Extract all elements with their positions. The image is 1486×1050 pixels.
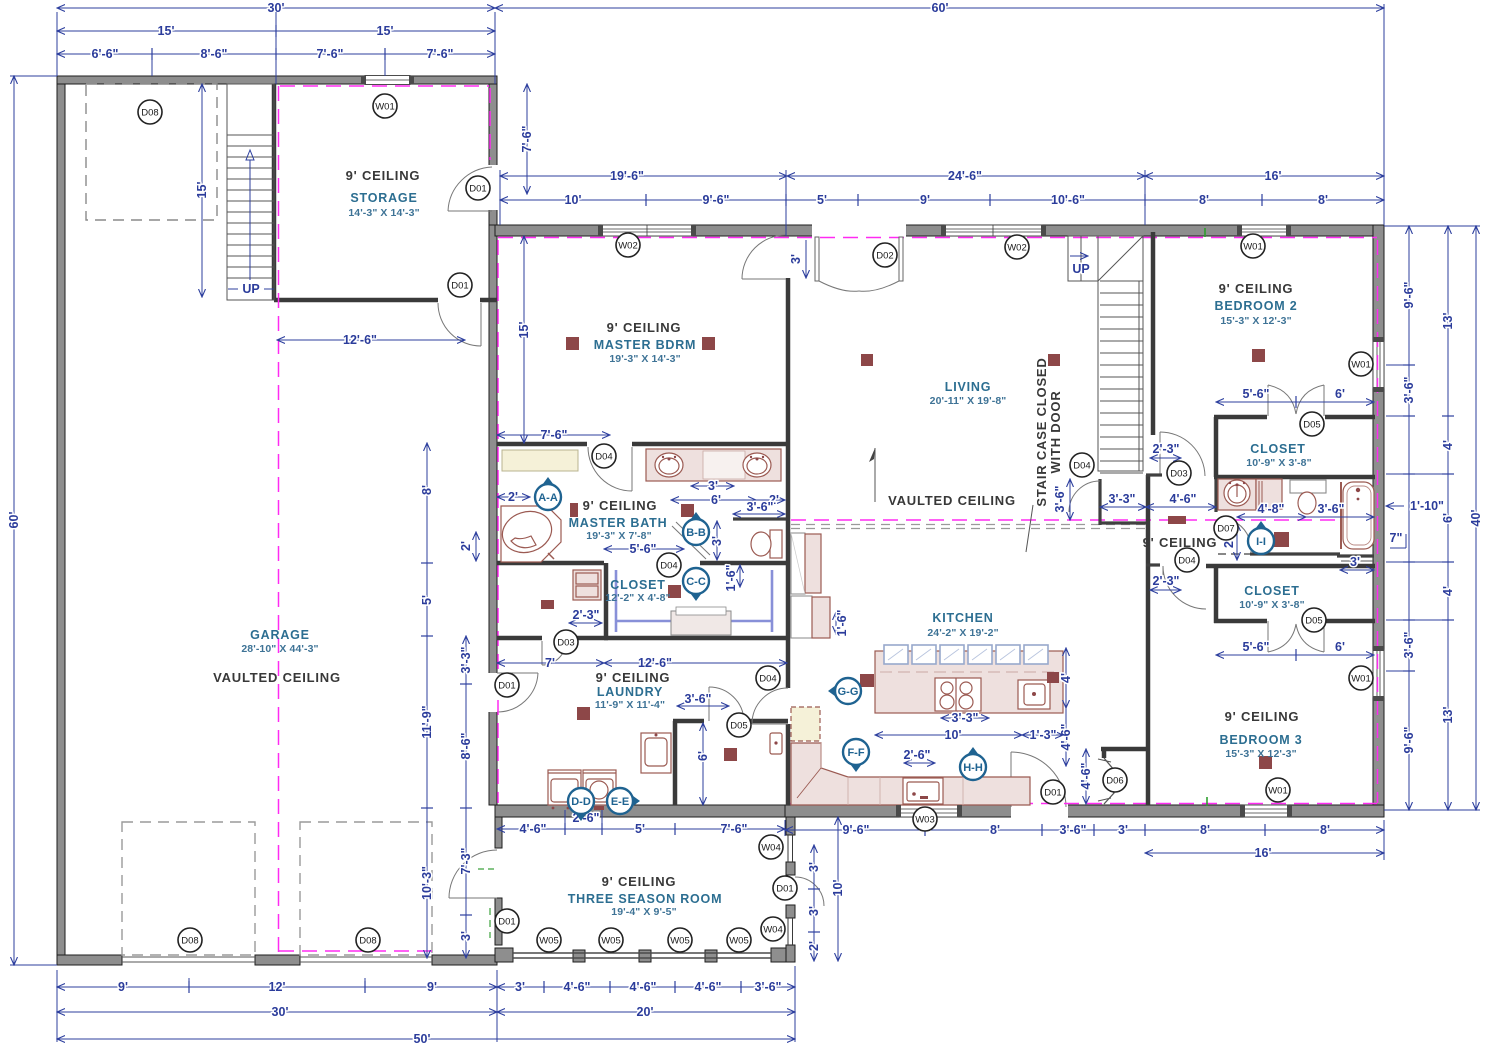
- svg-text:9' CEILING: 9' CEILING: [1219, 281, 1294, 296]
- svg-text:W01: W01: [1268, 786, 1288, 797]
- svg-text:3'-3": 3'-3": [1109, 492, 1136, 506]
- svg-text:D02: D02: [876, 251, 893, 262]
- svg-text:D06: D06: [1106, 776, 1123, 787]
- svg-text:3': 3': [710, 536, 724, 546]
- svg-text:B-B: B-B: [686, 527, 706, 539]
- svg-text:8'-6": 8'-6": [459, 732, 473, 759]
- svg-text:1'-10": 1'-10": [1410, 499, 1444, 513]
- svg-text:14'-3" X 14'-3": 14'-3" X 14'-3": [348, 207, 419, 219]
- svg-text:3': 3': [708, 479, 718, 493]
- svg-text:D01: D01: [498, 917, 515, 928]
- svg-text:9' CEILING: 9' CEILING: [346, 168, 421, 183]
- svg-text:15': 15': [377, 24, 394, 38]
- svg-text:W03: W03: [915, 815, 935, 826]
- svg-text:4': 4': [1441, 440, 1455, 450]
- svg-text:12'-2" X 4'-8": 12'-2" X 4'-8": [605, 592, 670, 604]
- svg-text:15': 15': [195, 182, 209, 199]
- svg-text:19'-3" X 7'-8": 19'-3" X 7'-8": [586, 530, 651, 542]
- svg-text:STAIR CASE CLOSED: STAIR CASE CLOSED: [1034, 357, 1049, 506]
- svg-text:UP: UP: [242, 282, 259, 296]
- svg-text:19'-3" X 14'-3": 19'-3" X 14'-3": [609, 353, 680, 365]
- svg-text:7'-6": 7'-6": [520, 125, 534, 152]
- svg-text:13': 13': [1441, 707, 1455, 724]
- svg-text:W01: W01: [1351, 360, 1371, 371]
- svg-text:9': 9': [427, 980, 437, 994]
- svg-text:W04: W04: [763, 925, 783, 936]
- svg-text:15'-3" X 12'-3": 15'-3" X 12'-3": [1220, 315, 1291, 327]
- svg-text:D-D: D-D: [571, 796, 591, 808]
- svg-text:D01: D01: [498, 681, 515, 692]
- svg-text:3'-6": 3'-6": [1402, 631, 1416, 658]
- svg-text:3': 3': [1118, 823, 1128, 837]
- svg-text:5'-6": 5'-6": [1243, 640, 1270, 654]
- svg-text:7'-3": 7'-3": [459, 847, 473, 874]
- svg-text:D03: D03: [1170, 469, 1187, 480]
- svg-text:UP: UP: [1072, 262, 1089, 276]
- svg-text:W04: W04: [761, 843, 781, 854]
- svg-text:D05: D05: [1305, 616, 1322, 627]
- svg-text:2'-3": 2'-3": [1153, 442, 1180, 456]
- svg-text:CLOSET: CLOSET: [1244, 584, 1300, 598]
- svg-text:19'-6": 19'-6": [610, 169, 644, 183]
- svg-text:1'-6": 1'-6": [724, 564, 738, 591]
- svg-text:VAULTED CEILING: VAULTED CEILING: [888, 493, 1016, 508]
- svg-text:3'-6": 3'-6": [1060, 823, 1087, 837]
- svg-text:15': 15': [517, 322, 531, 339]
- svg-text:9' CEILING: 9' CEILING: [602, 874, 677, 889]
- svg-text:3'-3": 3'-3": [459, 646, 473, 673]
- svg-text:VAULTED CEILING: VAULTED CEILING: [213, 670, 341, 685]
- svg-text:9' CEILING: 9' CEILING: [1143, 535, 1218, 550]
- svg-text:20'-11" X 19'-8": 20'-11" X 19'-8": [930, 395, 1007, 407]
- svg-text:10': 10': [831, 880, 845, 897]
- svg-text:4': 4': [1441, 586, 1455, 596]
- svg-text:3'-3": 3'-3": [952, 711, 979, 725]
- svg-text:10'-9" X 3'-8": 10'-9" X 3'-8": [1239, 599, 1304, 611]
- svg-text:20': 20': [637, 1005, 654, 1019]
- svg-text:8': 8': [1199, 193, 1209, 207]
- svg-text:LIVING: LIVING: [945, 380, 991, 394]
- svg-text:9'-6": 9'-6": [703, 193, 730, 207]
- svg-text:9' CEILING: 9' CEILING: [607, 320, 682, 335]
- svg-text:3': 3': [807, 862, 821, 872]
- svg-text:10': 10': [945, 728, 962, 742]
- svg-text:40': 40': [1469, 510, 1483, 527]
- svg-text:LAUNDRY: LAUNDRY: [597, 685, 663, 699]
- svg-text:A-A: A-A: [538, 492, 558, 504]
- svg-text:15'-3" X 12'-3": 15'-3" X 12'-3": [1225, 748, 1296, 760]
- svg-text:8': 8': [1320, 823, 1330, 837]
- svg-text:2'-6": 2'-6": [904, 748, 931, 762]
- svg-text:7'-6": 7'-6": [721, 822, 748, 836]
- svg-text:4'-6": 4'-6": [630, 980, 657, 994]
- svg-text:24'-2" X 19'-2": 24'-2" X 19'-2": [927, 627, 998, 639]
- svg-text:D04: D04: [1073, 461, 1090, 472]
- svg-text:3': 3': [1350, 555, 1360, 569]
- svg-text:2'-3": 2'-3": [1153, 574, 1180, 588]
- svg-text:1'-3": 1'-3": [1030, 728, 1057, 742]
- svg-text:9': 9': [118, 980, 128, 994]
- svg-text:19'-4" X 9'-5": 19'-4" X 9'-5": [611, 906, 676, 918]
- svg-text:5'-6": 5'-6": [630, 542, 657, 556]
- svg-text:12'-6": 12'-6": [343, 333, 377, 347]
- svg-text:3': 3': [789, 254, 803, 264]
- svg-text:10': 10': [565, 193, 582, 207]
- svg-text:4'-6": 4'-6": [695, 980, 722, 994]
- svg-text:6': 6': [1335, 387, 1345, 401]
- svg-text:7'-6": 7'-6": [317, 47, 344, 61]
- svg-text:C-C: C-C: [686, 576, 706, 588]
- svg-text:3'-6": 3'-6": [1318, 502, 1345, 516]
- svg-text:BEDROOM 3: BEDROOM 3: [1220, 733, 1303, 747]
- svg-text:D05: D05: [1303, 420, 1320, 431]
- svg-text:6': 6': [696, 751, 710, 761]
- svg-text:3'-6": 3'-6": [755, 980, 782, 994]
- svg-text:2': 2': [459, 541, 473, 551]
- svg-text:MASTER BDRM: MASTER BDRM: [594, 338, 697, 352]
- svg-text:7'-6": 7'-6": [427, 47, 454, 61]
- svg-text:5': 5': [817, 193, 827, 207]
- svg-text:STORAGE: STORAGE: [350, 191, 417, 205]
- svg-text:3'-6": 3'-6": [1053, 485, 1067, 512]
- svg-text:2'-3": 2'-3": [573, 608, 600, 622]
- svg-text:15': 15': [158, 24, 175, 38]
- svg-text:I-I: I-I: [1256, 536, 1266, 548]
- svg-text:24'-6": 24'-6": [948, 169, 982, 183]
- svg-text:W05: W05: [601, 936, 621, 947]
- svg-text:D05: D05: [730, 721, 747, 732]
- svg-text:3': 3': [807, 906, 821, 916]
- svg-text:KITCHEN: KITCHEN: [932, 611, 993, 625]
- svg-text:13': 13': [1441, 313, 1455, 330]
- svg-text:6': 6': [711, 493, 721, 507]
- svg-text:5'-6": 5'-6": [1243, 387, 1270, 401]
- svg-text:D04: D04: [660, 561, 677, 572]
- svg-text:50': 50': [414, 1032, 431, 1046]
- svg-text:W05: W05: [729, 936, 749, 947]
- svg-text:W01: W01: [375, 102, 395, 113]
- svg-text:CLOSET: CLOSET: [610, 578, 666, 592]
- svg-text:3': 3': [515, 980, 525, 994]
- svg-text:2': 2': [807, 941, 821, 951]
- svg-text:4'-6": 4'-6": [1059, 723, 1073, 750]
- svg-text:4': 4': [1059, 673, 1073, 683]
- svg-text:F-F: F-F: [847, 747, 864, 759]
- svg-text:8': 8': [420, 485, 434, 495]
- svg-text:11'-9" X 11'-4": 11'-9" X 11'-4": [595, 699, 665, 711]
- svg-text:D01: D01: [1044, 788, 1061, 799]
- svg-text:9'-6": 9'-6": [1402, 726, 1416, 753]
- svg-text:D04: D04: [759, 674, 776, 685]
- svg-text:H-H: H-H: [963, 762, 983, 774]
- svg-text:D01: D01: [451, 281, 468, 292]
- svg-text:10'-9" X 3'-8": 10'-9" X 3'-8": [1246, 457, 1311, 469]
- svg-text:D07: D07: [1217, 524, 1234, 535]
- svg-text:4'-6": 4'-6": [1170, 492, 1197, 506]
- svg-text:2': 2': [508, 490, 518, 504]
- svg-text:10'-3": 10'-3": [420, 866, 434, 900]
- svg-text:6'-6": 6'-6": [92, 47, 119, 61]
- svg-text:D08: D08: [181, 936, 198, 947]
- svg-text:5': 5': [420, 595, 434, 605]
- svg-text:7'-6": 7'-6": [541, 428, 568, 442]
- svg-text:9' CEILING: 9' CEILING: [1225, 709, 1300, 724]
- svg-text:16': 16': [1265, 169, 1282, 183]
- svg-text:11'-9": 11'-9": [420, 705, 434, 738]
- svg-text:W02: W02: [618, 241, 638, 252]
- svg-text:E-E: E-E: [611, 796, 629, 808]
- svg-text:D04: D04: [1178, 556, 1195, 567]
- svg-text:30': 30': [272, 1005, 289, 1019]
- svg-text:1'-6": 1'-6": [835, 609, 849, 636]
- svg-text:16': 16': [1255, 846, 1272, 860]
- svg-text:8': 8': [1318, 193, 1328, 207]
- svg-text:G-G: G-G: [838, 686, 859, 698]
- svg-text:12': 12': [269, 980, 286, 994]
- svg-text:12'-6": 12'-6": [638, 656, 672, 670]
- svg-text:7': 7': [545, 656, 555, 670]
- svg-text:4'-6": 4'-6": [564, 980, 591, 994]
- svg-text:D04: D04: [595, 452, 612, 463]
- svg-text:THREE SEASON ROOM: THREE SEASON ROOM: [568, 892, 723, 906]
- svg-text:D01: D01: [469, 184, 486, 195]
- svg-text:8': 8': [1200, 823, 1210, 837]
- svg-text:D03: D03: [557, 638, 574, 649]
- svg-text:W01: W01: [1351, 674, 1371, 685]
- svg-text:10'-6": 10'-6": [1051, 193, 1085, 207]
- svg-text:60': 60': [7, 512, 21, 529]
- svg-text:3'-6": 3'-6": [747, 500, 774, 514]
- svg-text:D08: D08: [141, 108, 158, 119]
- svg-text:9'-6": 9'-6": [1402, 281, 1416, 308]
- svg-text:4'-6": 4'-6": [1079, 762, 1093, 789]
- svg-text:8'-6": 8'-6": [201, 47, 228, 61]
- svg-text:6': 6': [1335, 640, 1345, 654]
- svg-text:D08: D08: [359, 936, 376, 947]
- svg-text:W05: W05: [539, 936, 559, 947]
- svg-text:W02: W02: [1007, 243, 1027, 254]
- svg-text:GARAGE: GARAGE: [250, 628, 310, 642]
- svg-text:7": 7": [1390, 531, 1403, 545]
- svg-text:W01: W01: [1243, 242, 1263, 253]
- svg-text:CLOSET: CLOSET: [1250, 442, 1306, 456]
- svg-text:8': 8': [990, 823, 1000, 837]
- svg-text:MASTER BATH: MASTER BATH: [569, 516, 668, 530]
- svg-text:3': 3': [459, 931, 473, 941]
- svg-text:4'-6": 4'-6": [520, 822, 547, 836]
- svg-text:D01: D01: [776, 884, 793, 895]
- svg-text:6': 6': [1441, 513, 1455, 523]
- svg-text:BEDROOM 2: BEDROOM 2: [1215, 299, 1298, 313]
- svg-text:3'-6": 3'-6": [685, 692, 712, 706]
- svg-text:60': 60': [932, 1, 949, 15]
- svg-text:3'-6": 3'-6": [1402, 376, 1416, 403]
- svg-text:9': 9': [920, 193, 930, 207]
- svg-text:28'-10" X 44'-3": 28'-10" X 44'-3": [241, 643, 318, 655]
- svg-text:WITH DOOR: WITH DOOR: [1048, 390, 1063, 473]
- svg-text:9'-6": 9'-6": [843, 823, 870, 837]
- svg-text:9' CEILING: 9' CEILING: [596, 670, 671, 685]
- svg-text:W05: W05: [670, 936, 690, 947]
- svg-text:4'-8": 4'-8": [1258, 502, 1285, 516]
- svg-text:5': 5': [635, 822, 645, 836]
- svg-text:9' CEILING: 9' CEILING: [583, 498, 658, 513]
